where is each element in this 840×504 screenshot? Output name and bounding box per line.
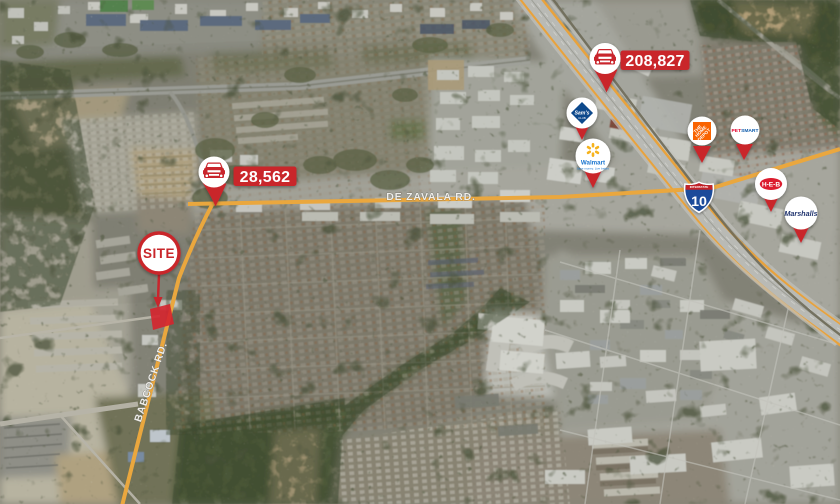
svg-text:208,827: 208,827 xyxy=(625,53,684,70)
svg-text:Marshalls: Marshalls xyxy=(784,209,817,218)
svg-text:DE ZAVALA RD.: DE ZAVALA RD. xyxy=(386,191,476,203)
svg-text:INTERSTATE: INTERSTATE xyxy=(690,185,709,189)
svg-text:28,562: 28,562 xyxy=(240,169,291,186)
svg-text:10: 10 xyxy=(691,194,707,210)
svg-text:Save money. Live better.: Save money. Live better. xyxy=(577,167,610,171)
svg-text:Walmart: Walmart xyxy=(581,160,605,167)
svg-text:H-E-B: H-E-B xyxy=(762,181,781,188)
svg-text:CLUB: CLUB xyxy=(578,116,586,120)
svg-text:SITE: SITE xyxy=(143,246,175,261)
svg-text:PETSMART: PETSMART xyxy=(732,128,759,134)
